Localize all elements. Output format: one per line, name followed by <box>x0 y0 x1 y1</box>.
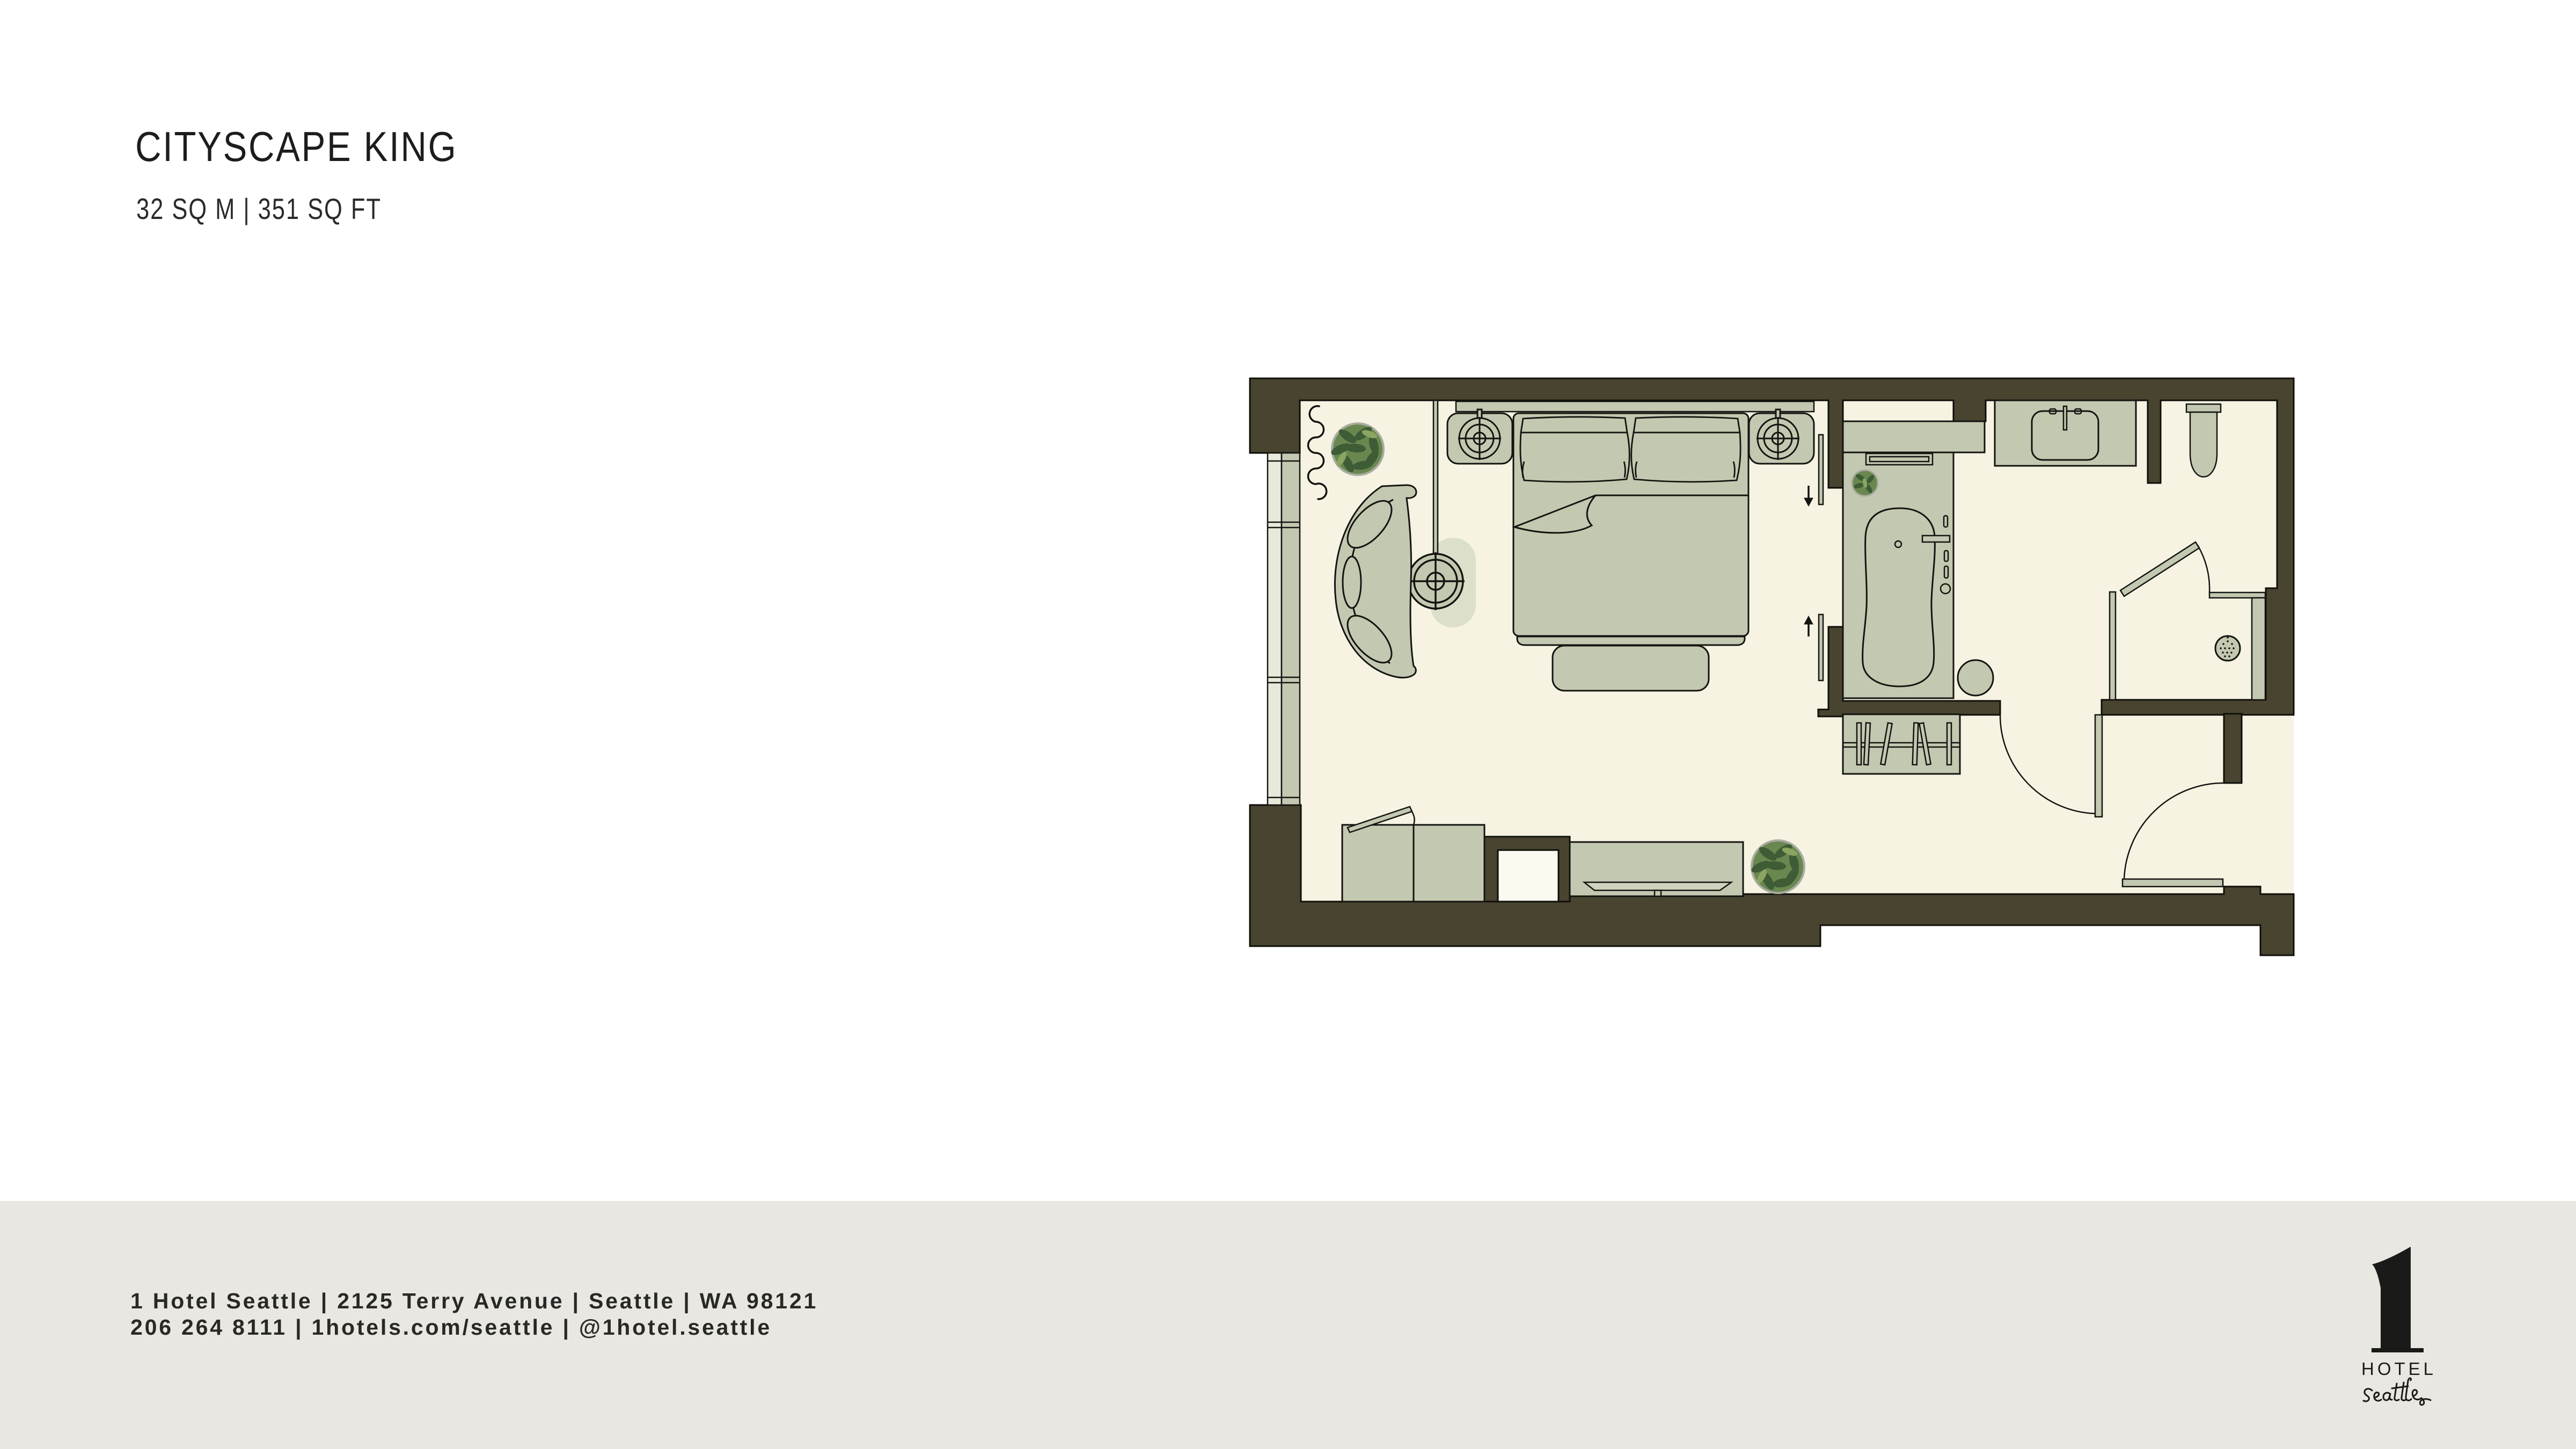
svg-text:HOTEL: HOTEL <box>2361 1359 2436 1379</box>
